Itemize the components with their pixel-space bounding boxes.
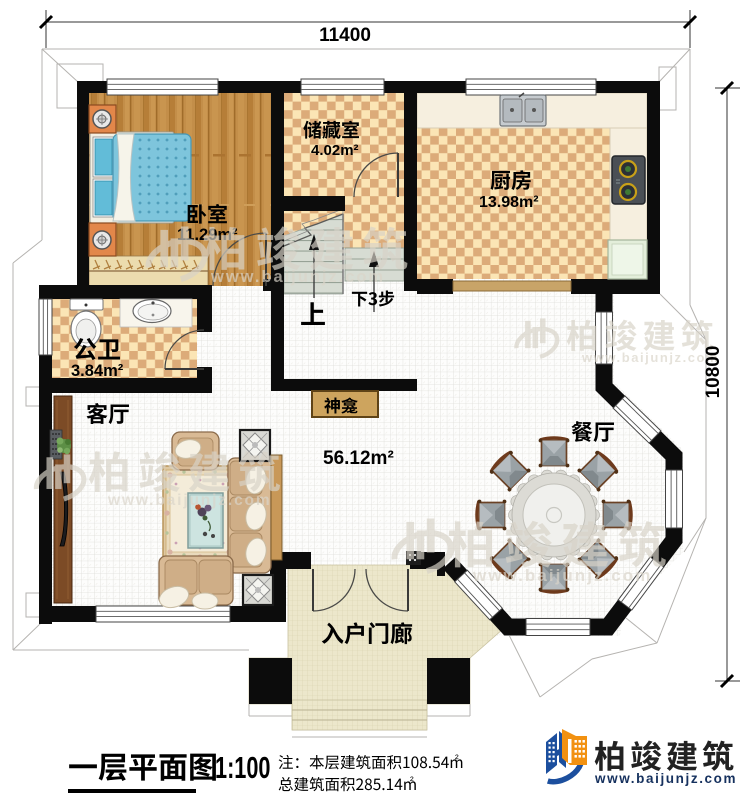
- svg-text:10800: 10800: [703, 346, 724, 399]
- svg-text:4.02m²: 4.02m²: [311, 142, 359, 159]
- svg-text:www.baijunjz.com: www.baijunjz.com: [107, 492, 272, 509]
- svg-text:1:100: 1:100: [215, 750, 270, 785]
- svg-text:3.84m²: 3.84m²: [71, 362, 124, 380]
- svg-text:²: ²: [410, 775, 414, 787]
- svg-text:www.baijunjz.com: www.baijunjz.com: [210, 268, 385, 286]
- svg-text:www.baijunjz.com: www.baijunjz.com: [472, 566, 652, 585]
- svg-text:²: ²: [455, 753, 459, 765]
- svg-text:www.baijunjz.com: www.baijunjz.com: [581, 350, 719, 365]
- svg-text:11400: 11400: [319, 25, 371, 46]
- svg-text:www.baijunjz.com: www.baijunjz.com: [594, 771, 737, 786]
- svg-text:56.12m²: 56.12m²: [323, 448, 394, 469]
- svg-text:13.98m²: 13.98m²: [479, 194, 539, 211]
